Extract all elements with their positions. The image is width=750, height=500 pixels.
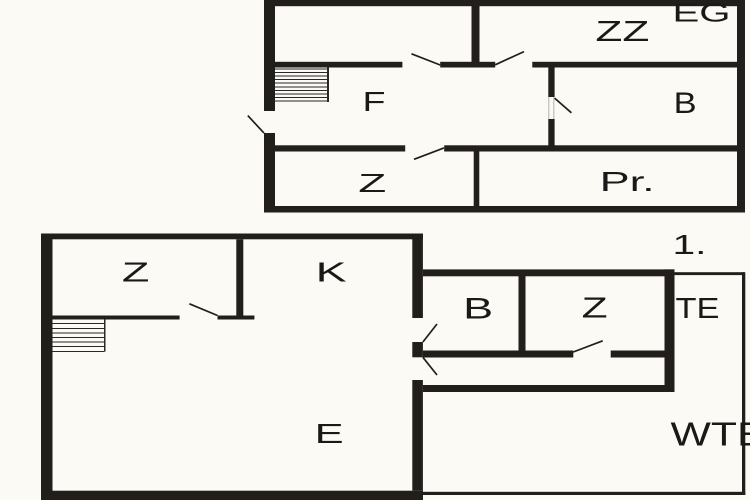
svg-text:Z: Z xyxy=(582,292,608,324)
svg-text:Z: Z xyxy=(122,256,150,287)
svg-text:E: E xyxy=(315,418,344,449)
svg-text:Pr.: Pr. xyxy=(600,166,655,197)
svg-text:ZZ: ZZ xyxy=(595,16,649,48)
svg-text:1.: 1. xyxy=(673,229,707,260)
svg-text:B: B xyxy=(674,87,697,120)
svg-text:F: F xyxy=(363,86,386,117)
svg-text:EG: EG xyxy=(673,0,731,28)
svg-text:TE: TE xyxy=(676,293,720,325)
svg-text:Z: Z xyxy=(358,168,386,198)
svg-text:B: B xyxy=(463,293,493,326)
svg-text:WTE: WTE xyxy=(671,416,750,453)
svg-text:K: K xyxy=(316,257,348,288)
